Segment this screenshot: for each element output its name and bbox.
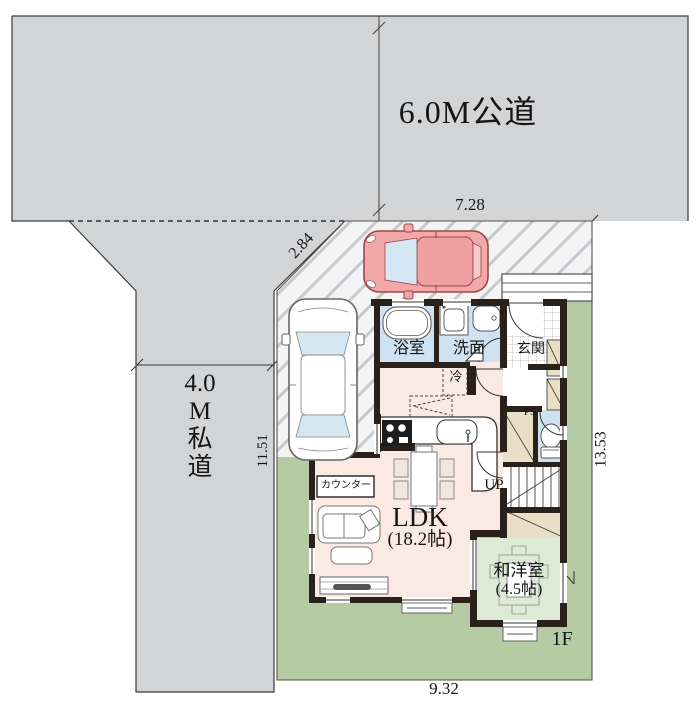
jwroom-size-label: (4.5帖) — [483, 582, 555, 599]
chair — [394, 481, 408, 499]
dimension-side-depth: 11.51 — [256, 427, 272, 475]
side-mirror — [404, 291, 413, 299]
tv — [333, 584, 371, 590]
side-road-label: 4.0 M 私 道 — [176, 370, 224, 482]
side-mirror — [282, 334, 290, 345]
dimension-depth: 13.53 — [594, 421, 611, 477]
ldk-label: LDK — [383, 503, 457, 531]
sofa — [318, 506, 380, 543]
dimension-width: 9.32 — [422, 680, 466, 698]
main-road-label: 6.0M公道 — [388, 96, 548, 130]
kitchen-sink — [437, 420, 477, 444]
bathroom-label: 浴室 — [384, 341, 434, 358]
entrance-label: 玄関 — [510, 343, 552, 358]
pipe-space-label: PS — [520, 407, 540, 419]
car-pink — [364, 224, 488, 299]
chair — [440, 459, 454, 477]
entrance-porch-steps — [502, 274, 592, 301]
dining-table — [411, 452, 437, 506]
stairs-floor — [503, 465, 565, 510]
site-plan-drawing — [0, 0, 700, 719]
side-mirror — [404, 224, 413, 232]
tv-board — [320, 577, 388, 594]
ldk-size-label: (18.2帖) — [372, 530, 468, 550]
wash-basin — [473, 306, 500, 331]
side-mirror — [356, 334, 364, 345]
washroom-label: 洗面 — [444, 341, 494, 358]
counter-label: カウンター — [318, 481, 374, 492]
bathtub — [383, 307, 431, 339]
jwroom-label: 和洋室 — [483, 562, 555, 580]
toilet — [541, 424, 561, 458]
stove — [382, 420, 412, 446]
dimension-frontage: 7.28 — [448, 196, 492, 214]
coffee-table — [331, 547, 372, 564]
stairs-up-label: UP — [481, 478, 507, 494]
chair — [440, 481, 454, 499]
washing-machine — [440, 304, 468, 335]
chair — [394, 459, 408, 477]
floor-plan-page: 6.0M公道 4.0 M 私 道 7.28 2.84 11.51 13.53 9… — [0, 0, 700, 719]
car-white — [282, 299, 364, 460]
refrigerator-label: 冷 — [447, 370, 465, 384]
floor-label: 1F — [544, 629, 580, 650]
